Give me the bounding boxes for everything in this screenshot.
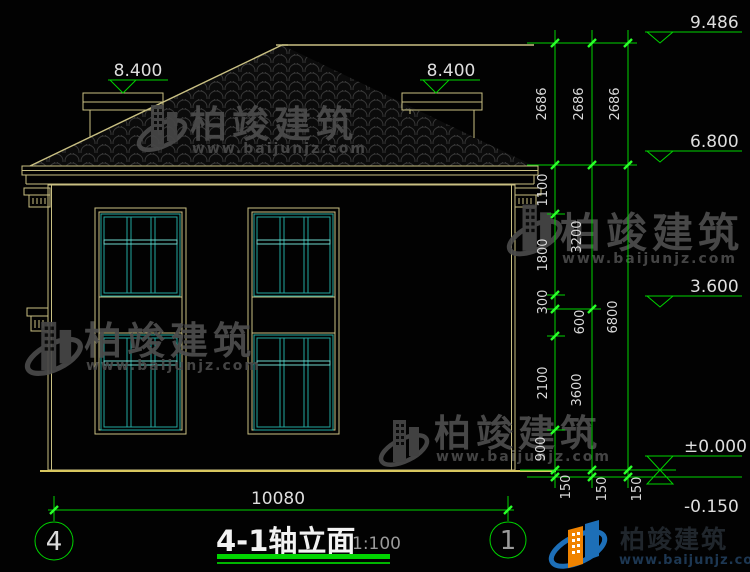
axis-label-right: 1 xyxy=(500,526,517,556)
dim-label: 3200 xyxy=(570,220,585,253)
elevation-drawing: 柏竣建筑 www.baijunjz.com 柏竣建筑 www.baijunjz.… xyxy=(0,0,750,572)
dim-label: 6800 xyxy=(606,300,621,333)
dim-label: 900 xyxy=(534,437,549,462)
cad-elevation-screenshot: 柏竣建筑 www.baijunjz.com 柏竣建筑 www.baijunjz.… xyxy=(0,0,750,572)
watermark-brand: 柏竣建筑 xyxy=(560,209,744,257)
drawing-title: 4-1轴立面 xyxy=(216,524,355,558)
brand-name: 柏竣建筑 xyxy=(620,525,728,554)
level-parapet-right: 8.400 xyxy=(427,61,476,81)
watermark-url: www.baijunjz.com xyxy=(86,358,261,374)
level-eaves: 6.800 xyxy=(690,132,739,152)
eaves-fascia xyxy=(22,166,538,184)
dim-label: 150 xyxy=(595,477,610,502)
watermark-url: www.baijunjz.com xyxy=(436,449,611,465)
level-triangle-parapet-right xyxy=(423,80,449,93)
level-parapet-left: 8.400 xyxy=(114,61,163,81)
dim-label: 2686 xyxy=(608,87,623,120)
dim-label: 1100 xyxy=(536,173,551,206)
axis-label-left: 4 xyxy=(46,527,63,557)
watermark-brand: 柏竣建筑 xyxy=(190,103,358,146)
width-dim-label: 10080 xyxy=(251,489,305,509)
title-block: 4-1轴立面 1:100 xyxy=(216,524,401,564)
window-assembly-right xyxy=(248,208,339,434)
brand-url: www.baijunjz.com xyxy=(619,553,750,568)
level-triangle-ground-top xyxy=(647,456,673,470)
watermark-url: www.baijunjz.com xyxy=(192,141,367,157)
level-triangle-parapet-left xyxy=(110,80,136,93)
dim-label: 2686 xyxy=(535,87,550,120)
level-ridge: 9.486 xyxy=(690,13,739,33)
level-ground: ±0.000 xyxy=(684,437,747,457)
watermark-brand: 柏竣建筑 xyxy=(84,319,256,363)
dim-label: 2100 xyxy=(536,366,551,399)
watermark-logo-icon xyxy=(377,420,432,471)
dim-label: 2686 xyxy=(572,87,587,120)
dim-label: 150 xyxy=(630,477,645,502)
dim-label: 1800 xyxy=(536,238,551,271)
level-triangle-floor2 xyxy=(647,296,673,307)
title-underline-thin xyxy=(217,562,390,564)
brand-logo: 柏竣建筑 www.baijunjz.com xyxy=(546,520,750,572)
watermark-url: www.baijunjz.com xyxy=(562,251,737,267)
dim-label: 300 xyxy=(536,290,551,315)
eave-bracket-left xyxy=(24,188,50,207)
level-triangle-ridge xyxy=(647,32,673,43)
dim-label: 600 xyxy=(573,310,588,335)
title-underline-thick xyxy=(217,554,390,559)
dim-label: 150 xyxy=(559,475,574,500)
watermark-left: 柏竣建筑 www.baijunjz.com xyxy=(23,319,261,380)
dim-label: 3600 xyxy=(570,373,585,406)
watermark-bottom: 柏竣建筑 www.baijunjz.com xyxy=(377,412,611,471)
brand-logo-icon xyxy=(546,520,610,572)
level-below-ground: -0.150 xyxy=(684,497,739,517)
level-floor2: 3.600 xyxy=(690,277,739,297)
drawing-scale: 1:100 xyxy=(352,534,401,554)
level-triangle-eaves xyxy=(647,151,673,162)
